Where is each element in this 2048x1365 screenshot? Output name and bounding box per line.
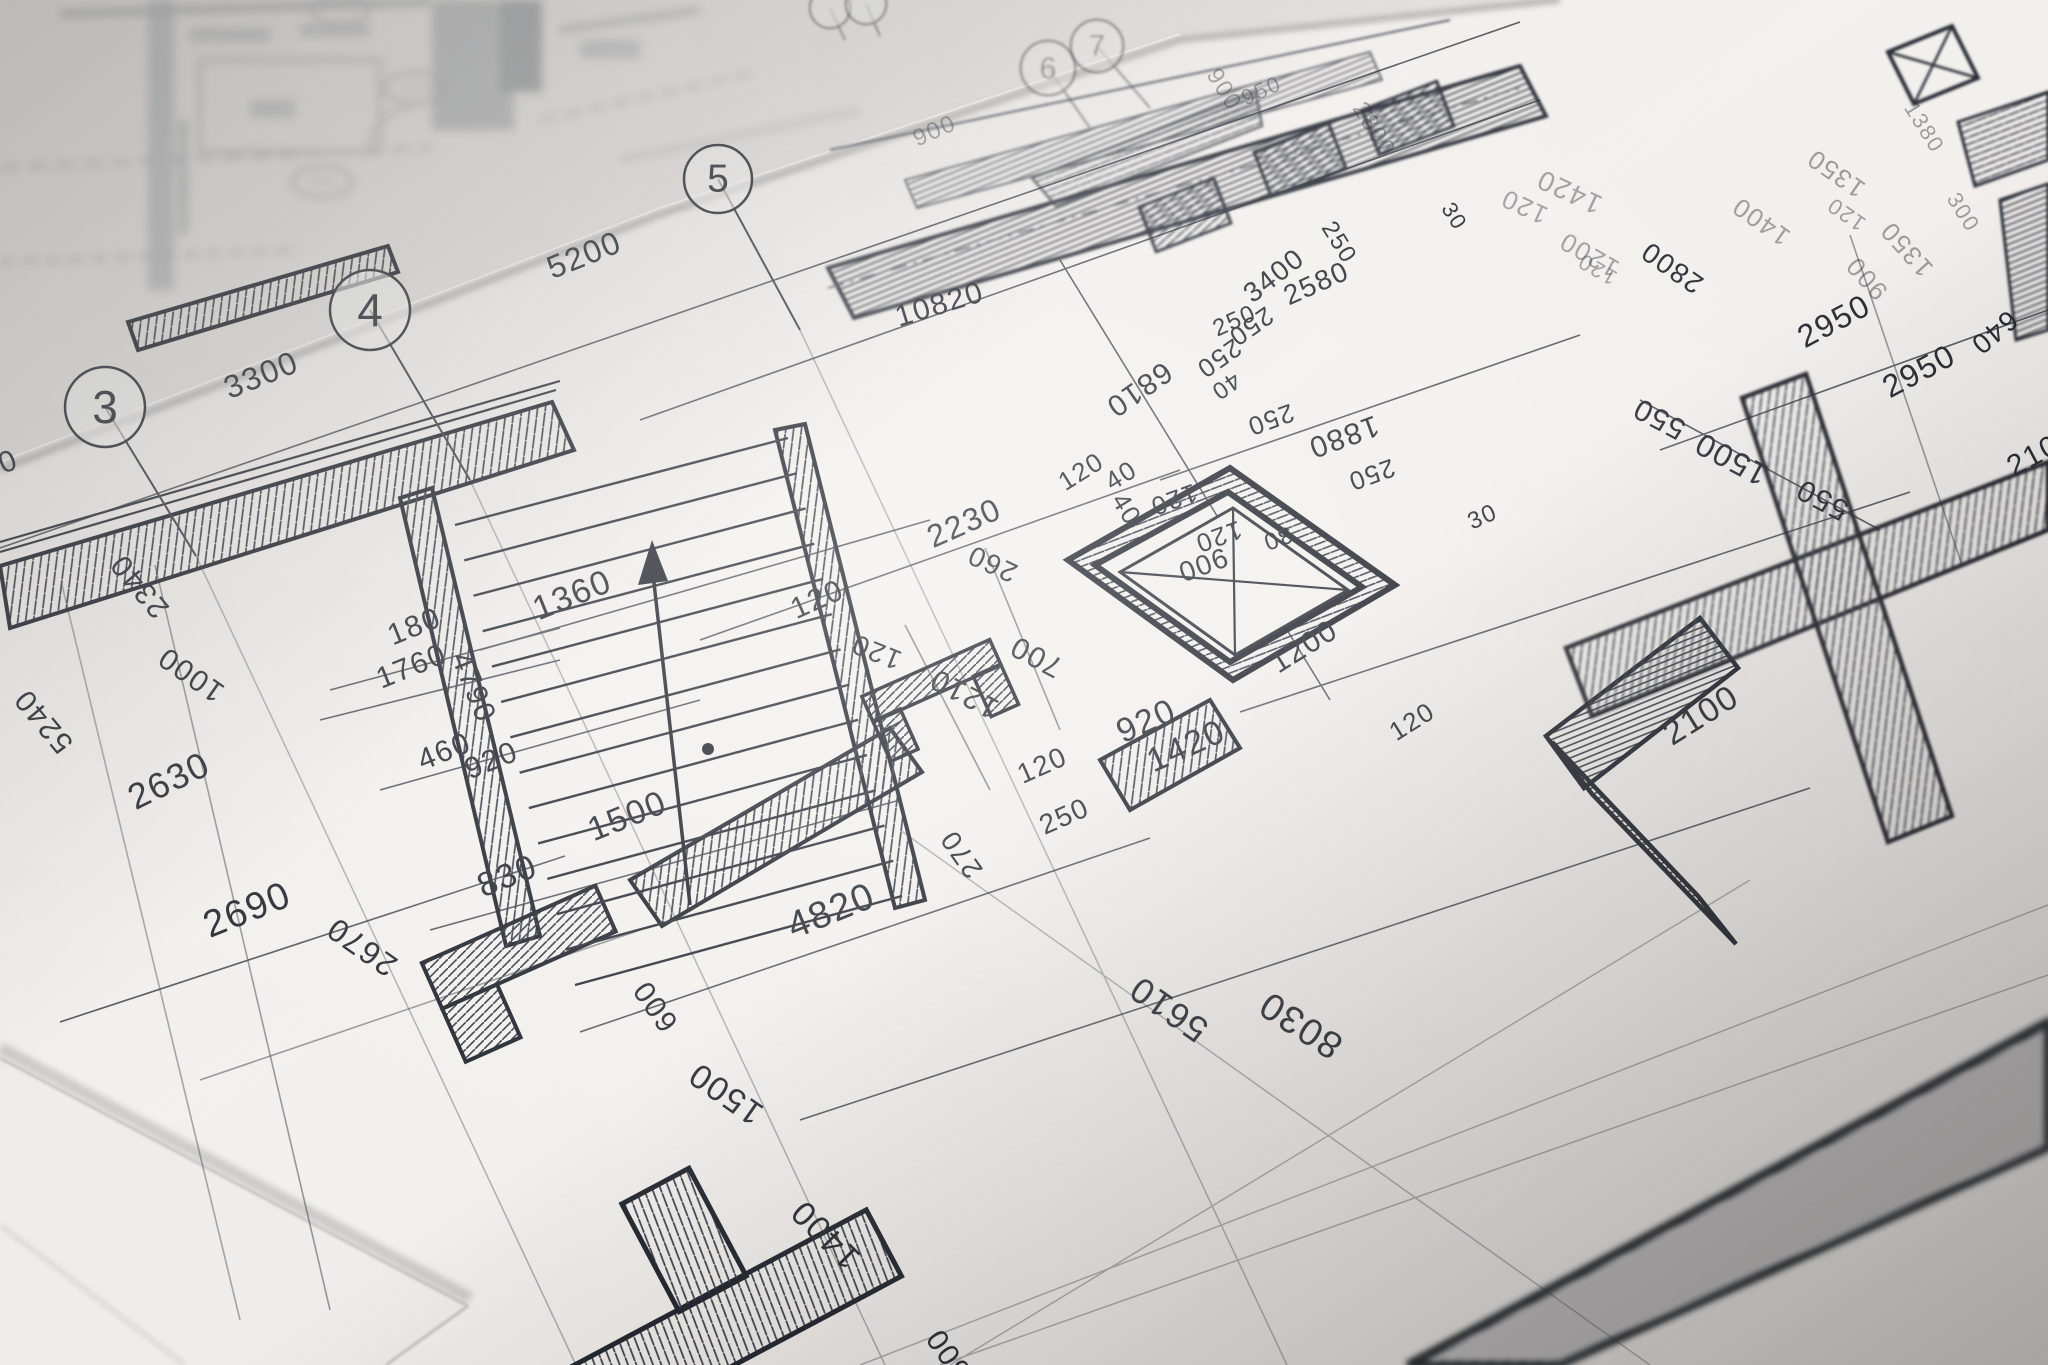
grid-bubble-label: 7 bbox=[1089, 30, 1106, 63]
grid-bubble-label: 5 bbox=[707, 158, 729, 201]
blueprint-photo: 34567 3300520010820234010005240263018017… bbox=[0, 0, 2048, 1365]
grid-bubble-label: 6 bbox=[1039, 51, 1056, 86]
stair-dot bbox=[702, 743, 714, 755]
grid-bubble-label: 4 bbox=[357, 284, 383, 336]
grid-bubble-label: 3 bbox=[92, 381, 118, 433]
